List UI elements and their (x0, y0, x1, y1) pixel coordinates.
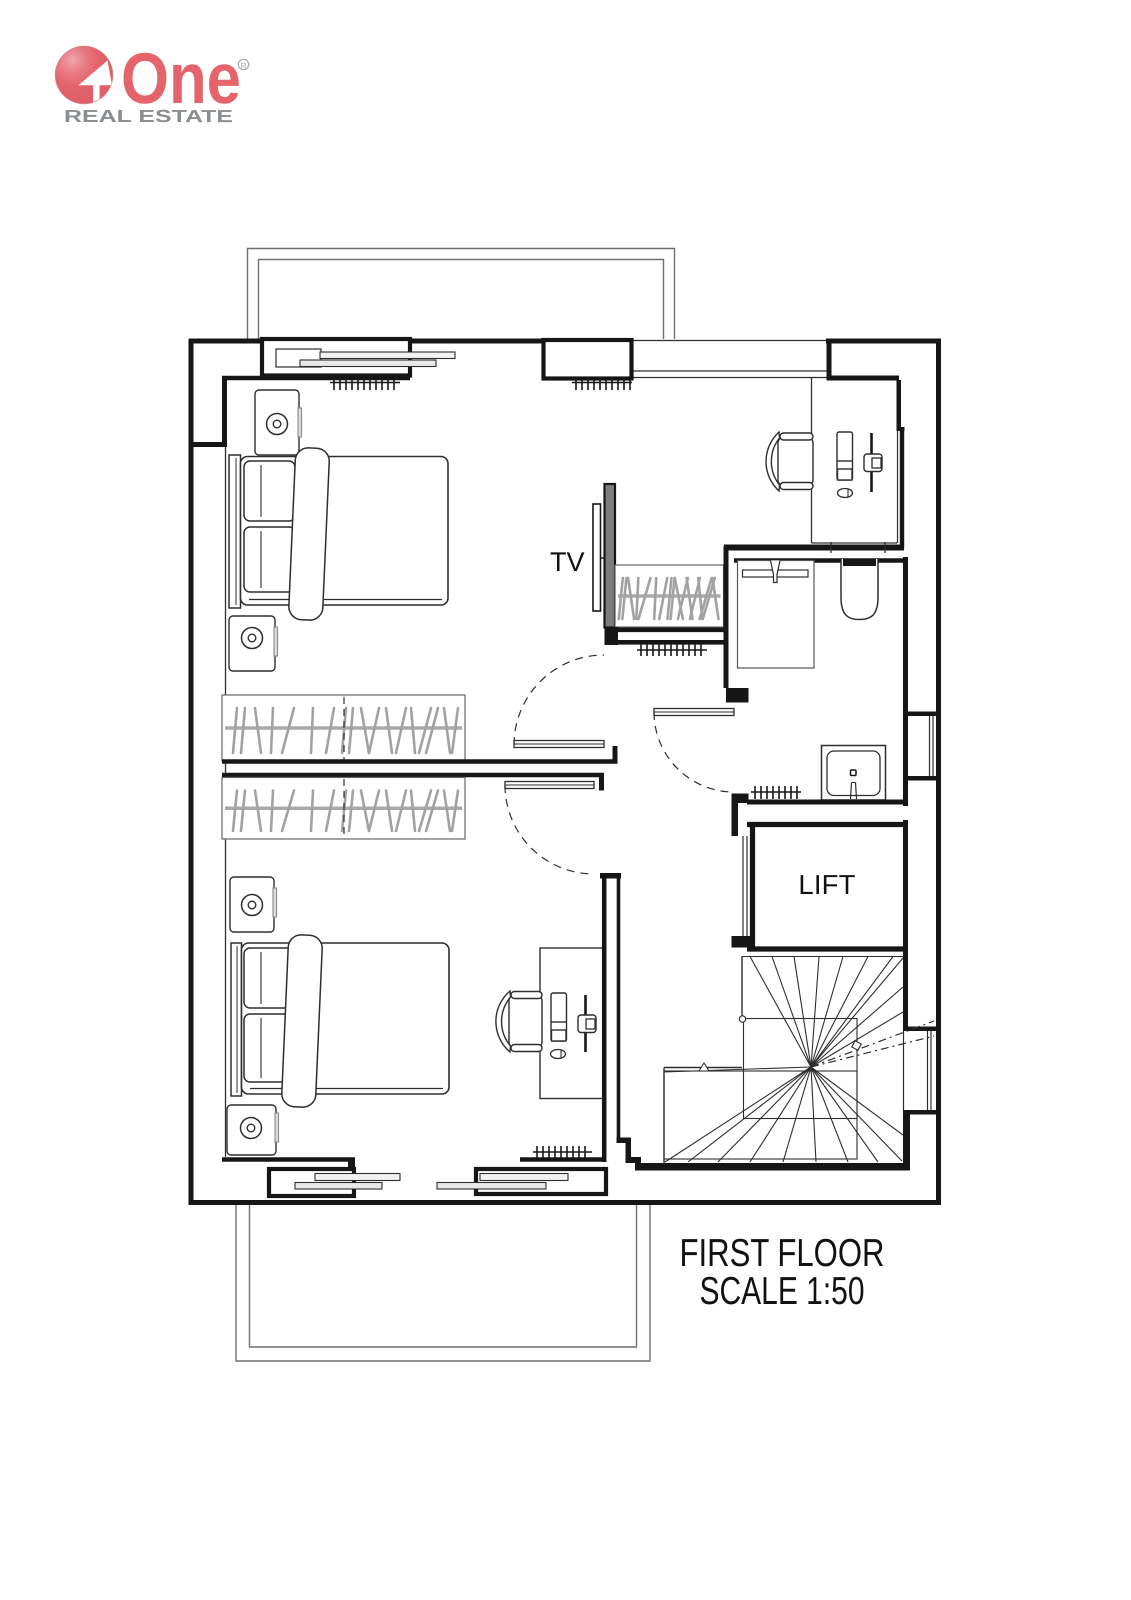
svg-text:R: R (241, 61, 247, 71)
svg-text:LIFT: LIFT (798, 869, 855, 900)
svg-text:REAL ESTATE: REAL ESTATE (64, 106, 233, 126)
svg-text:TV: TV (550, 547, 585, 577)
svg-text:SCALE 1:50: SCALE 1:50 (699, 1270, 864, 1313)
svg-text:FIRST FLOOR: FIRST FLOOR (679, 1232, 884, 1275)
